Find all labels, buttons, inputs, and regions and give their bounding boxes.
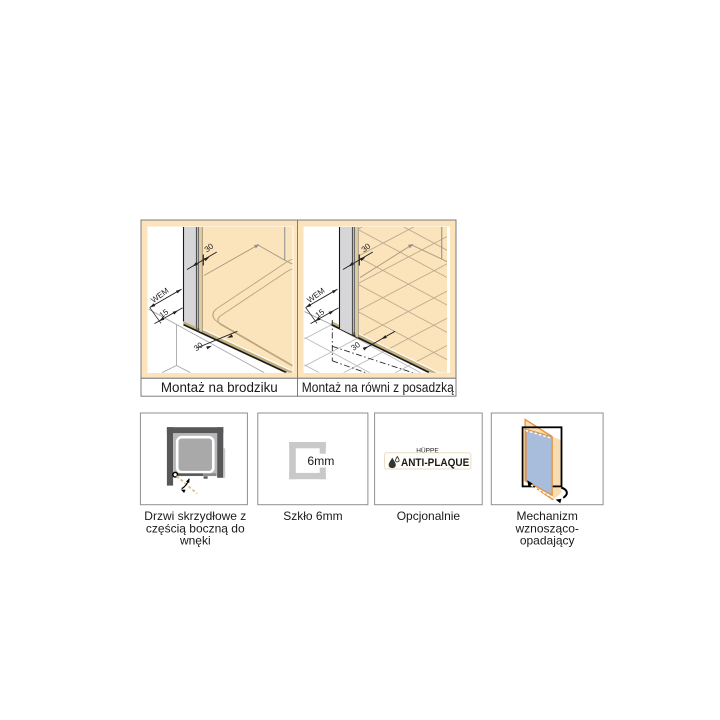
svg-text:Opcjonalnie: Opcjonalnie	[397, 509, 461, 523]
svg-text:Montaż na równi z posadzką: Montaż na równi z posadzką	[302, 380, 454, 395]
svg-text:Montaż na brodziku: Montaż na brodziku	[161, 380, 278, 395]
svg-text:opadający: opadający	[520, 534, 575, 548]
svg-text:ANTI-PLAQUE: ANTI-PLAQUE	[401, 457, 469, 469]
svg-text:6mm: 6mm	[307, 454, 334, 468]
svg-text:Szkło 6mm: Szkło 6mm	[283, 509, 342, 523]
svg-text:wnęki: wnęki	[179, 534, 211, 548]
